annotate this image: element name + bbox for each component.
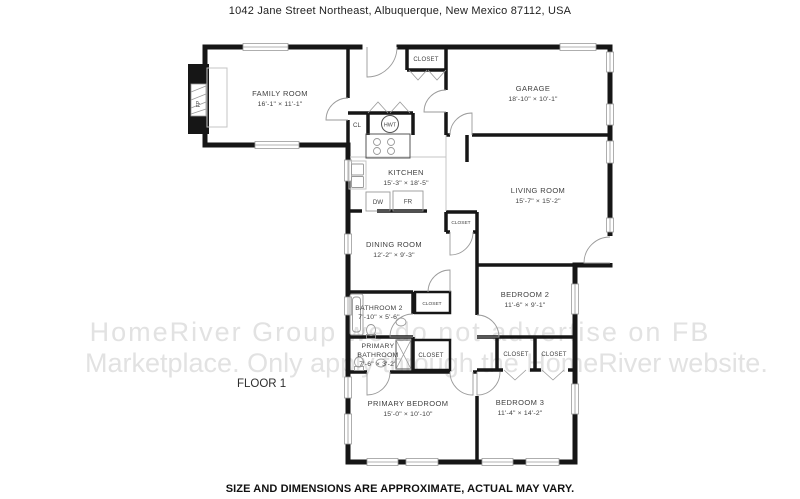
room-dims-kitchen: 15'-3" × 18'-5" xyxy=(383,180,429,187)
closet-label-primary: CLOSET xyxy=(418,353,443,359)
sink-basin xyxy=(352,164,364,175)
dw-label: DW xyxy=(373,199,383,206)
closet-label-bath-hall: CLOSET xyxy=(422,301,441,307)
burner xyxy=(374,139,381,146)
burner xyxy=(388,139,395,146)
kitchen-fixtures xyxy=(349,116,446,212)
fr-label: FR xyxy=(404,199,413,206)
burner xyxy=(388,148,395,155)
disclaimer: SIZE AND DIMENSIONS ARE APPROXIMATE, ACT… xyxy=(0,483,800,495)
hearth xyxy=(207,68,227,127)
toilet xyxy=(367,325,376,336)
room-label-dining-room: DINING ROOM xyxy=(366,240,422,249)
room-label-primary-bedroom: PRIMARY BEDROOM xyxy=(368,399,449,408)
cl-label: CL xyxy=(353,122,361,129)
room-dims-primary-bedroom: 15'-0" × 10'-10" xyxy=(383,411,433,418)
hwt-label: HWT xyxy=(384,123,397,129)
room-dims-family-room: 16'-1" × 11'-1" xyxy=(258,101,303,108)
closet-label-hall: CLOSET xyxy=(451,220,470,226)
floorplan-page: 1042 Jane Street Northeast, Albuquerque,… xyxy=(0,0,800,499)
address: 1042 Jane Street Northeast, Albuquerque,… xyxy=(0,5,800,17)
room-label-family-room: FAMILY ROOM xyxy=(252,89,308,98)
room-label-bedroom-2: BEDROOM 2 xyxy=(501,290,550,299)
closet-label-bed3-left: CLOSET xyxy=(503,352,528,358)
closet-label-entry: CLOSET xyxy=(413,57,438,63)
floorplan-drawing: FAMILY ROOM 16'-1" × 11'-1" GARAGE 18'-1… xyxy=(0,0,800,499)
room-label-bedroom-3: BEDROOM 3 xyxy=(496,398,545,407)
fp-label: FP xyxy=(196,100,202,107)
room-label-kitchen: KITCHEN xyxy=(388,168,424,177)
room-dims-bedroom-3: 11'-4" × 14'-2" xyxy=(498,410,543,417)
room-dims-bathroom-2: 7'-10" × 5'-6" xyxy=(358,314,400,321)
room-label-garage: GARAGE xyxy=(516,84,551,93)
closet-label-bed3-right: CLOSET xyxy=(541,352,566,358)
room-dims-garage: 18'-10" × 10'-1" xyxy=(508,96,558,103)
room-dims-bedroom-2: 11'-6" × 9'-1" xyxy=(505,302,546,309)
room-dims-dining-room: 12'-2" × 9'-3" xyxy=(373,252,415,259)
sink-basin xyxy=(352,177,364,188)
floor-label: FLOOR 1 xyxy=(237,378,286,390)
room-dims-primary-bathroom: 7'-6" × 3'-2" xyxy=(359,361,397,368)
stove xyxy=(366,134,410,158)
burner xyxy=(374,148,381,155)
room-label-primary-bathroom-2: BATHROOM xyxy=(357,352,398,359)
room-label-living-room: LIVING ROOM xyxy=(511,186,565,195)
room-dims-living-room: 15'-7" × 15'-2" xyxy=(515,198,561,205)
room-label-bathroom-2: BATHROOM 2 xyxy=(355,305,402,312)
room-label-primary-bathroom-1: PRIMARY xyxy=(362,343,395,350)
